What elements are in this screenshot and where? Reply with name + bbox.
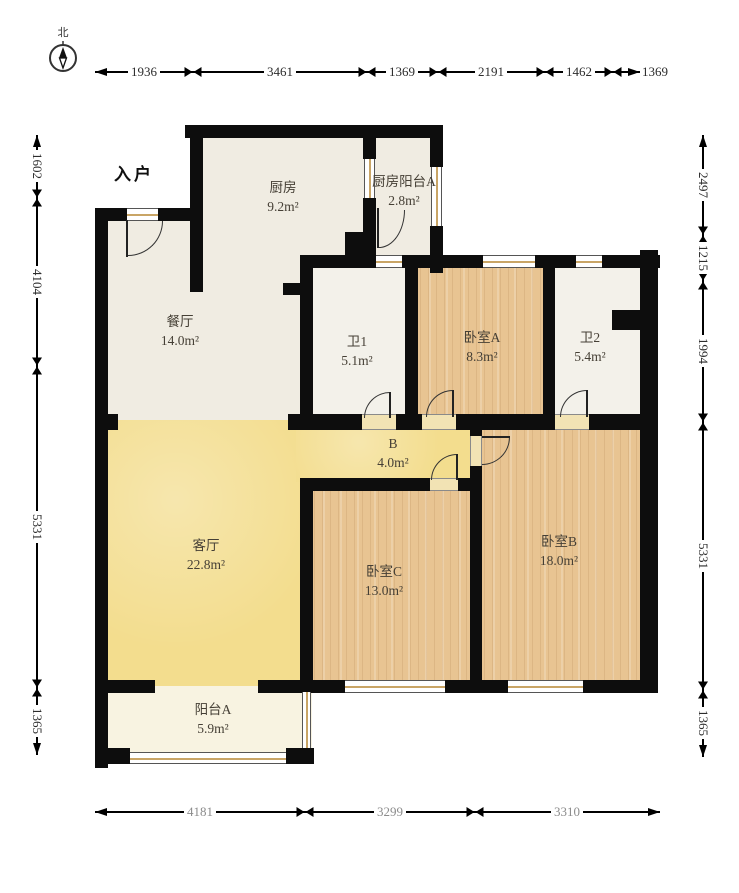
dim-label: 2191 <box>475 64 507 80</box>
room-area: 5.1m² <box>341 351 372 370</box>
wall <box>363 137 376 159</box>
room-label-bedroom-a: 卧室A 8.3m² <box>464 328 501 366</box>
arrow-icon <box>699 745 707 757</box>
wall <box>288 414 362 430</box>
wall <box>543 255 555 430</box>
dim-label: 1994 <box>695 335 711 367</box>
room-area: 14.0m² <box>161 331 199 350</box>
dimension-tick-icon <box>537 67 554 77</box>
room-area: 18.0m² <box>540 551 578 570</box>
arrow-icon <box>95 808 107 816</box>
dim-label: 4104 <box>29 266 45 298</box>
dim-label: 2497 <box>695 169 711 201</box>
wall <box>95 680 155 693</box>
door-leaf <box>586 390 588 417</box>
room-label-bath2: 卫2 5.4m² <box>574 328 605 366</box>
dimension-tick-icon <box>467 807 484 817</box>
wall <box>470 466 482 692</box>
dimension-tick-icon <box>359 67 376 77</box>
wall <box>95 414 118 430</box>
window <box>508 680 583 693</box>
wall <box>190 125 203 292</box>
window <box>130 752 286 764</box>
door-leaf <box>377 208 379 248</box>
dim-label: 1462 <box>563 64 595 80</box>
dimension-tick-icon <box>698 414 708 431</box>
room-label-kitchen-balcony: 厨房阳台A 2.8m² <box>372 172 436 210</box>
room-area: 4.0m² <box>377 453 408 472</box>
room-name: 厨房阳台A <box>372 172 436 191</box>
door-leaf <box>452 390 454 417</box>
compass-icon <box>45 39 81 75</box>
room-label-hallway: B 4.0m² <box>377 434 408 472</box>
dimension-line-left <box>36 135 38 755</box>
floor-plan: 北 入户 <box>0 0 739 893</box>
wall <box>482 680 508 693</box>
room-area: 2.8m² <box>372 191 436 210</box>
wall <box>158 208 191 221</box>
wall <box>313 680 345 693</box>
wall <box>345 232 365 257</box>
dimension-tick-icon <box>698 273 708 290</box>
north-label: 北 <box>44 27 82 39</box>
room-area: 9.2m² <box>267 197 298 216</box>
arrow-icon <box>95 68 107 76</box>
room-label-bedroom-c: 卧室C 13.0m² <box>365 562 403 600</box>
room-label-bedroom-b: 卧室B 18.0m² <box>540 532 578 570</box>
room-name: 卧室B <box>540 532 578 551</box>
arrow-icon <box>33 135 41 147</box>
dim-label: 1215 <box>695 242 711 274</box>
dimension-tick-icon <box>297 807 314 817</box>
room-label-living: 客厅 22.8m² <box>187 536 225 574</box>
room-name: B <box>377 434 408 453</box>
room-name: 卫1 <box>341 332 372 351</box>
wall <box>300 255 313 430</box>
room-area: 5.4m² <box>574 347 605 366</box>
dimension-tick-icon <box>430 67 447 77</box>
room-name: 卧室A <box>464 328 501 347</box>
wall <box>583 680 658 693</box>
dim-label: 3310 <box>551 804 583 820</box>
dimension-tick-icon <box>32 680 42 697</box>
wall <box>640 250 658 692</box>
dim-label: 1369 <box>386 64 418 80</box>
room-area: 5.9m² <box>195 719 232 738</box>
dimension-tick-icon <box>32 190 42 207</box>
door-sill <box>470 436 482 466</box>
room-area: 13.0m² <box>365 581 403 600</box>
dim-label: 5331 <box>695 540 711 572</box>
dimension-tick-icon <box>185 67 202 77</box>
dim-label: 1602 <box>29 150 45 182</box>
room-name: 卧室C <box>365 562 403 581</box>
dim-label: 1365 <box>695 707 711 739</box>
dimension-tick-icon <box>698 682 708 699</box>
dim-label: 1369 <box>639 64 671 80</box>
wall <box>445 680 482 693</box>
wall <box>283 283 301 295</box>
wall <box>185 125 443 138</box>
dimension-tick-icon <box>698 227 708 244</box>
dim-label: 1936 <box>128 64 160 80</box>
dimension-tick-icon <box>605 67 622 77</box>
wall <box>405 255 418 430</box>
door-leaf <box>126 220 128 257</box>
wall <box>612 310 640 330</box>
entry-threshold <box>127 208 158 221</box>
arrow-icon <box>33 743 41 755</box>
wall <box>470 426 482 436</box>
wall <box>300 478 313 692</box>
room-name: 阳台A <box>195 700 232 719</box>
room-name: 客厅 <box>187 536 225 555</box>
window <box>483 255 535 268</box>
door-leaf <box>482 436 510 438</box>
window <box>345 680 445 693</box>
room-name: 厨房 <box>267 178 298 197</box>
room-name: 卫2 <box>574 328 605 347</box>
room-name: 餐厅 <box>161 312 199 331</box>
wall <box>430 125 443 167</box>
dim-label: 1365 <box>29 705 45 737</box>
window <box>576 255 602 268</box>
room-area: 8.3m² <box>464 347 501 366</box>
dim-label: 5331 <box>29 511 45 543</box>
arrow-icon <box>648 808 660 816</box>
dimension-tick-icon <box>32 358 42 375</box>
wall <box>396 414 422 430</box>
window <box>302 692 311 748</box>
room-label-kitchen: 厨房 9.2m² <box>267 178 298 216</box>
window <box>376 255 402 268</box>
dim-label: 3461 <box>264 64 296 80</box>
entry-label: 入户 <box>114 160 154 185</box>
room-label-balcony-a: 阳台A 5.9m² <box>195 700 232 738</box>
dim-label: 4181 <box>184 804 216 820</box>
wall <box>286 748 314 764</box>
wall <box>95 748 130 764</box>
arrow-icon <box>699 135 707 147</box>
room-label-dining: 餐厅 14.0m² <box>161 312 199 350</box>
room-label-bath1: 卫1 5.1m² <box>341 332 372 370</box>
wall <box>589 414 658 430</box>
door-leaf <box>389 392 391 418</box>
wall <box>300 478 430 491</box>
dim-label: 3299 <box>374 804 406 820</box>
room-area: 22.8m² <box>187 555 225 574</box>
door-leaf <box>456 454 458 480</box>
compass: 北 <box>44 27 82 80</box>
wall <box>458 478 482 491</box>
